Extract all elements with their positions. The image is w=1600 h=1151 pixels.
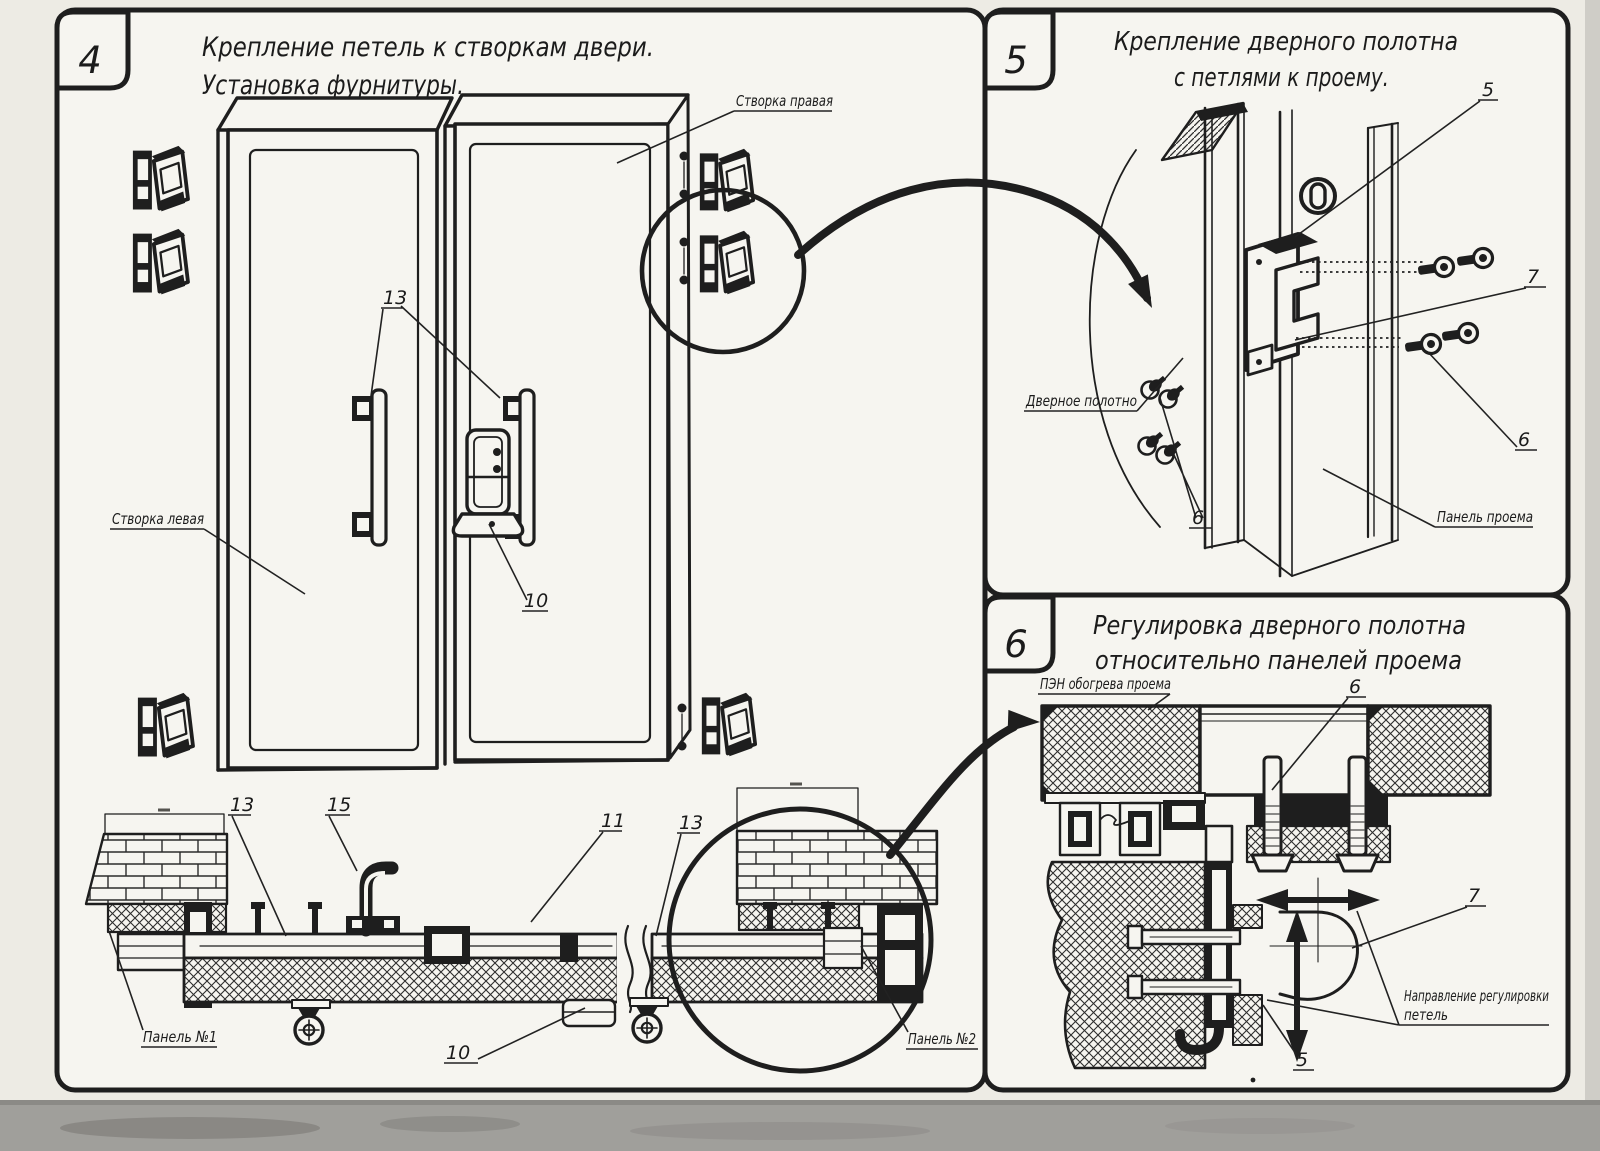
hinge-icon	[133, 146, 188, 212]
svg-text:5: 5	[1482, 79, 1494, 101]
hole-ring-icon	[1301, 179, 1335, 213]
panel-number-tab-4: 4	[57, 12, 128, 88]
svg-text:Створка левая: Створка левая	[112, 510, 204, 528]
panel4-number: 4	[78, 39, 102, 82]
hinge-icon	[702, 693, 755, 756]
scanned-assembly-drawing: 4 Крепление петель к створкам двери. Уст…	[0, 0, 1600, 1151]
panel6-title-line2: относительно панелей проема	[1095, 646, 1462, 676]
panel6-number: 6	[1004, 623, 1028, 666]
hinge-icon	[133, 229, 188, 295]
panel-number-tab-5: 5	[985, 12, 1053, 88]
panel5-title-line1: Крепление дверного полотна	[1114, 27, 1458, 57]
hinge-icon	[700, 231, 753, 294]
svg-text:5: 5	[1296, 1049, 1308, 1071]
door-leaf-left	[218, 98, 452, 770]
svg-text:Панель проема: Панель проема	[1437, 508, 1533, 526]
hinge-icon	[700, 149, 753, 212]
svg-text:7: 7	[1527, 266, 1539, 288]
svg-text:13: 13	[383, 287, 407, 309]
technical-drawing: 4 Крепление петель к створкам двери. Уст…	[0, 0, 1600, 1151]
svg-text:11: 11	[601, 810, 625, 832]
svg-text:Дверное полотно: Дверное полотно	[1025, 392, 1137, 410]
svg-text:7: 7	[1468, 885, 1480, 907]
svg-text:Панель №2: Панель №2	[908, 1030, 976, 1048]
panel6-title-line1: Регулировка дверного полотна	[1093, 611, 1466, 641]
bottom-scan-strip	[0, 1100, 1600, 1151]
svg-text:10: 10	[524, 590, 548, 612]
svg-text:Направление регулировки: Направление регулировки	[1404, 987, 1549, 1005]
svg-text:13: 13	[230, 794, 254, 816]
svg-text:ПЭН обогрева проема: ПЭН обогрева проема	[1040, 675, 1171, 693]
latch-keeper	[563, 1000, 615, 1026]
panel4-title-line1: Крепление петель к створкам двери.	[202, 32, 654, 63]
panel5-number: 5	[1004, 39, 1028, 82]
hinge-icon	[138, 693, 193, 759]
svg-text:6: 6	[1349, 676, 1361, 698]
svg-text:петель: петель	[1404, 1006, 1448, 1024]
svg-text:13: 13	[679, 812, 703, 834]
svg-text:15: 15	[327, 794, 351, 816]
insulation-hatch	[739, 904, 859, 930]
svg-text:Створка правая: Створка правая	[736, 92, 833, 110]
panel-number-tab-6: 6	[985, 597, 1053, 671]
svg-text:6: 6	[1518, 429, 1530, 451]
svg-text:10: 10	[446, 1042, 470, 1064]
brick-wall-left	[86, 834, 227, 904]
panel5-title-line2: с петлями к проему.	[1174, 63, 1389, 93]
svg-text:Панель №1: Панель №1	[143, 1028, 217, 1046]
